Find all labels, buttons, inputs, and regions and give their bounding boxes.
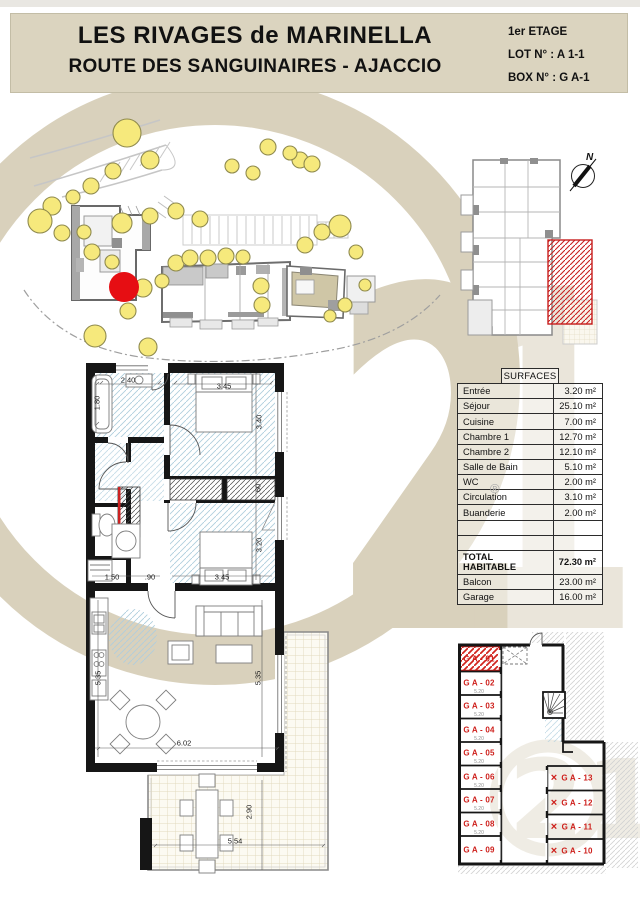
garage-doors [500, 650, 548, 860]
surfaces-row: WC2.00 m² [458, 475, 603, 490]
surface-room-label [458, 520, 554, 535]
surface-room-label: Garage [458, 590, 554, 605]
side-table [216, 645, 252, 663]
page-top-edge [0, 0, 640, 7]
surface-area-value: 2.00 m² [553, 505, 602, 520]
garage-label: G A - 06 [463, 773, 494, 782]
garage-cross-mark: × [551, 845, 557, 857]
surface-area-value: 25.10 m² [553, 399, 602, 414]
surfaces-title: SURFACES [501, 368, 559, 384]
location-marker [109, 272, 139, 302]
garage-dim-label: 5.20 [474, 712, 484, 718]
surface-area-value: 3.10 m² [553, 490, 602, 505]
north-arrow-icon: N [570, 152, 596, 191]
stair-lobby [545, 718, 563, 742]
box-label: BOX N° : G A-1 [508, 67, 589, 90]
garage-label: G A - 13 [561, 774, 592, 783]
sofa [196, 606, 262, 636]
dimension-label: 3.40 [255, 415, 264, 430]
surface-area-value: 16.00 m² [553, 590, 602, 605]
dimension-label: 3.45 [217, 382, 232, 391]
garage-dim-label: 5.20 [474, 783, 484, 789]
surfaces-row: Salle de Bain5.10 m² [458, 459, 603, 474]
garage-dim-label: 5.20 [474, 736, 484, 742]
registered-trademark: ® [490, 481, 500, 496]
garage-dim-label: 5.20 [474, 830, 484, 836]
garage-dim-label: 5.20 [474, 689, 484, 695]
surface-room-label: Chambre 2 [458, 444, 554, 459]
dimension-label: .90 [145, 573, 155, 582]
lot-label: LOT N° : A 1-1 [508, 44, 589, 67]
garage-label: G A - 02 [463, 679, 494, 688]
garage-dim-label: 5.20 [474, 806, 484, 812]
surface-area-value: 12.10 m² [553, 444, 602, 459]
surface-room-label: Buanderie [458, 505, 554, 520]
project-title: LES RIVAGES de MARINELLA [11, 22, 499, 50]
dimension-label: 1.80 [93, 396, 102, 411]
surfaces-row: Buanderie2.00 m² [458, 505, 603, 520]
garage-label: G A - 10 [561, 847, 592, 856]
dimension-label: .60 [254, 484, 263, 494]
dimension-label: 3.20 [255, 538, 264, 553]
garage-cross-mark: × [551, 797, 557, 809]
dimension-label: 2.90 [245, 805, 254, 820]
plan-document-page: 2 1 21 LES RIVAGES de MARINELLA ROUTE DE… [0, 0, 640, 905]
dimension-label: 1.50 [105, 573, 120, 582]
surfaces-row: Séjour25.10 m² [458, 399, 603, 414]
garage-label: G A - 09 [463, 846, 494, 855]
surfaces-row-empty [458, 520, 603, 535]
surfaces-row: TOTAL HABITABLE72.30 m² [458, 550, 603, 574]
surface-room-label: Salle de Bain [458, 459, 554, 474]
apartment-floor-plan [78, 360, 340, 882]
site-plan [20, 106, 444, 362]
dimension-label: 3.45 [215, 573, 230, 582]
surface-area-value: 2.00 m² [553, 475, 602, 490]
rug [109, 609, 157, 665]
header-info: 1er ETAGE LOT N° : A 1-1 BOX N° : G A-1 [508, 21, 589, 90]
surfaces-row: Cuisine7.00 m² [458, 414, 603, 429]
surface-area-value [553, 520, 602, 535]
surfaces-table-body: Entrée3.20 m²Séjour25.10 m²Cuisine7.00 m… [458, 384, 603, 605]
garage-cross-mark: × [551, 821, 557, 833]
surface-room-label: Balcon [458, 574, 554, 589]
surface-room-label: Circulation [458, 490, 554, 505]
garage-label: G A - 07 [463, 796, 494, 805]
dimension-label: 6.02 [177, 739, 192, 748]
surfaces-row-empty [458, 535, 603, 550]
surface-room-label: Séjour [458, 399, 554, 414]
garage-cross-mark: × [551, 772, 557, 784]
surface-area-value: 3.20 m² [553, 384, 602, 399]
surface-room-label: TOTAL HABITABLE [458, 550, 554, 574]
dimension-label: 2.40 [121, 376, 136, 385]
project-address: ROUTE DES SANGUINAIRES - AJACCIO [11, 56, 499, 78]
parking-stair [543, 692, 565, 718]
dimension-label: 5.35 [94, 671, 103, 686]
header: LES RIVAGES de MARINELLA ROUTE DES SANGU… [10, 13, 628, 93]
surface-area-value: 12.70 m² [553, 429, 602, 444]
surfaces-row: Chambre 212.10 m² [458, 444, 603, 459]
dimension-label: 5.54 [228, 837, 243, 846]
floor-label: 1er ETAGE [508, 21, 589, 44]
garage-label: G A - 11 [562, 823, 593, 832]
surface-area-value: 5.10 m² [553, 459, 602, 474]
garage-label: G A - 03 [463, 702, 494, 711]
surface-room-label: WC [458, 475, 554, 490]
surfaces-row: Chambre 112.70 m² [458, 429, 603, 444]
highlighted-lot-area [548, 240, 592, 324]
garage-label: G A - 05 [463, 749, 494, 758]
garage-label: G A - 12 [561, 799, 592, 808]
garage-label: G A - 04 [463, 726, 494, 735]
surface-area-value [553, 535, 602, 550]
surface-area-value: 72.30 m² [553, 550, 602, 574]
surfaces-row: Garage16.00 m² [458, 590, 603, 605]
surface-room-label: Entrée [458, 384, 554, 399]
surface-area-value: 23.00 m² [553, 574, 602, 589]
dining-table [126, 705, 160, 739]
surfaces-row: Balcon23.00 m² [458, 574, 603, 589]
surface-room-label: Chambre 1 [458, 429, 554, 444]
surfaces-row: Circulation3.10 m² [458, 490, 603, 505]
dimension-label: 5.35 [254, 671, 263, 686]
surface-room-label [458, 535, 554, 550]
surface-room-label: Cuisine [458, 414, 554, 429]
north-label: N [586, 152, 594, 163]
surface-area-value: 7.00 m² [553, 414, 602, 429]
key-plan: N [448, 143, 638, 355]
garage-label: G A - 08 [463, 820, 494, 829]
surfaces-table: SURFACES Entrée3.20 m²Séjour25.10 m²Cuis… [457, 368, 603, 605]
surfaces-row: Entrée3.20 m² [458, 384, 603, 399]
garage-dim-label: 5.20 [474, 759, 484, 765]
balcony-table [196, 790, 218, 858]
garage-label: G A - 01 [463, 655, 494, 664]
